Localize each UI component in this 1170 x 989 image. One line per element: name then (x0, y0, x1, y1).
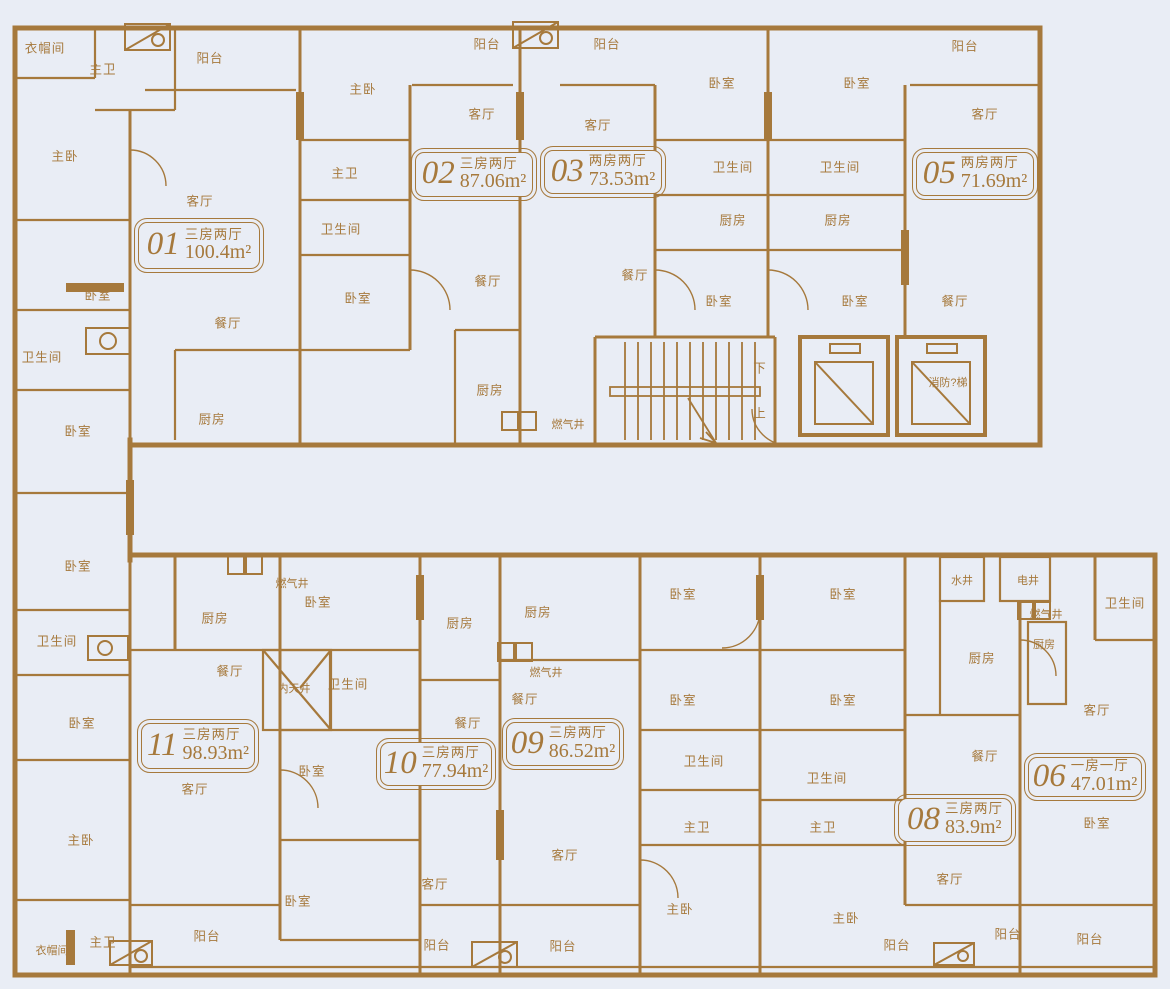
room-label: 阳台 (423, 935, 450, 954)
room-label: 客厅 (936, 869, 963, 888)
room-label: 主卫 (89, 932, 116, 951)
room-label: 餐厅 (621, 265, 648, 284)
room-label: 主卫 (683, 817, 710, 836)
unit-badge-01: 01三房两厅100.4m² (138, 222, 260, 269)
staircase (610, 342, 760, 443)
room-label: 主卫 (89, 59, 116, 78)
room-label: 电井 (1017, 572, 1039, 588)
unit-area: 71.69m² (961, 171, 1028, 192)
unit-number: 02 (422, 157, 455, 192)
room-label: 主卧 (51, 146, 78, 165)
floor-plan-canvas: 衣帽间主卫阳台主卧客厅卧室餐厅卫生间厨房卧室主卧主卫卫生间卧室阳台客厅餐厅厨房燃… (0, 0, 1170, 989)
room-label: 消防?梯 (928, 374, 967, 390)
unit-number: 06 (1033, 760, 1066, 795)
room-label: 燃气井 (552, 416, 585, 432)
unit-number: 08 (907, 803, 940, 838)
room-label: 卧室 (64, 421, 91, 440)
room-label: 厨房 (198, 409, 225, 428)
room-label: 上 (753, 403, 767, 422)
unit-badge-03: 03两房两厅73.53m² (544, 150, 662, 194)
unit-layout-type: 三房两厅 (460, 157, 518, 171)
room-label: 客厅 (584, 115, 611, 134)
unit-layout-type: 两房两厅 (961, 156, 1019, 170)
unit-badge-11: 11三房两厅98.93m² (141, 723, 255, 769)
unit-area: 87.06m² (460, 171, 527, 192)
unit-number: 01 (147, 228, 180, 263)
room-label: 卫生间 (684, 751, 725, 770)
door-arcs (130, 150, 1056, 898)
room-label: 客厅 (186, 191, 213, 210)
room-label: 餐厅 (216, 661, 243, 680)
room-label: 厨房 (476, 380, 503, 399)
room-label: 餐厅 (474, 271, 501, 290)
room-label: 卫生间 (713, 157, 754, 176)
unit-layout-type: 一房一厅 (1071, 759, 1129, 773)
unit-badge-09: 09三房两厅86.52m² (506, 722, 620, 766)
room-label: 主卧 (67, 830, 94, 849)
room-label: 客厅 (551, 845, 578, 864)
room-label: 主卧 (349, 79, 376, 98)
room-label: 主卧 (666, 899, 693, 918)
unit-layout-type: 三房两厅 (183, 728, 241, 742)
room-label: 卧室 (669, 584, 696, 603)
room-label: 主卫 (331, 163, 358, 182)
room-label: 卫生间 (1105, 593, 1146, 612)
unit-area: 47.01m² (1071, 774, 1138, 795)
room-label: 卧室 (68, 713, 95, 732)
unit-badge-02: 02三房两厅87.06m² (415, 152, 533, 197)
unit-area: 73.53m² (589, 169, 656, 190)
unit-badge-10: 10三房两厅77.94m² (380, 742, 492, 786)
unit-number: 05 (923, 157, 956, 192)
unit-number: 03 (551, 155, 584, 190)
room-label: 燃气井 (530, 664, 563, 680)
unit-number: 11 (147, 729, 178, 764)
room-label: 水井 (951, 572, 973, 588)
unit-number: 10 (384, 747, 417, 782)
room-label: 餐厅 (971, 746, 998, 765)
room-label: 卧室 (344, 288, 371, 307)
unit-layout-type: 三房两厅 (945, 802, 1003, 816)
room-label: 卫生间 (807, 768, 848, 787)
room-label: 阳台 (196, 48, 223, 67)
unit-layout-type: 三房两厅 (422, 746, 480, 760)
room-label: 厨房 (968, 648, 995, 667)
room-label: 厨房 (719, 210, 746, 229)
room-label: 主卧 (832, 908, 859, 927)
room-label: 卧室 (298, 761, 325, 780)
room-label: 主卫 (809, 817, 836, 836)
unit-area: 86.52m² (549, 741, 616, 762)
room-label: 卫生间 (37, 631, 78, 650)
room-label: 燃气井 (276, 575, 309, 591)
room-label: 厨房 (524, 602, 551, 621)
room-label: 客厅 (421, 874, 448, 893)
room-label: 卧室 (669, 690, 696, 709)
room-label: 阳台 (883, 935, 910, 954)
room-label: 客厅 (1083, 700, 1110, 719)
room-label: 卫生间 (328, 674, 369, 693)
unit-layout-type: 两房两厅 (589, 154, 647, 168)
room-label: 下 (753, 358, 767, 377)
room-label: 阳台 (994, 924, 1021, 943)
unit-area: 98.93m² (183, 743, 250, 764)
room-label: 厨房 (1033, 636, 1055, 652)
room-label: 卧室 (843, 73, 870, 92)
room-label: 卫生间 (22, 347, 63, 366)
room-label: 卧室 (829, 584, 856, 603)
room-label: 餐厅 (454, 713, 481, 732)
unit-layout-type: 三房两厅 (549, 726, 607, 740)
room-label: 卧室 (64, 556, 91, 575)
room-label: 卧室 (304, 592, 331, 611)
room-label: 阳台 (549, 936, 576, 955)
room-label: 衣帽间 (25, 38, 66, 57)
unit-area: 100.4m² (185, 242, 252, 263)
room-label: 厨房 (201, 608, 228, 627)
room-label: 阳台 (193, 926, 220, 945)
unit-badge-06: 06一房一厅47.01m² (1028, 757, 1142, 797)
unit-area: 77.94m² (422, 761, 489, 782)
room-label: 客厅 (181, 779, 208, 798)
room-label: 卧室 (708, 73, 735, 92)
unit-layout-type: 三房两厅 (185, 228, 243, 242)
room-label: 厨房 (824, 210, 851, 229)
room-label: 卧室 (829, 690, 856, 709)
room-label: 卧室 (284, 891, 311, 910)
room-label: 卧室 (705, 291, 732, 310)
room-label: 阳台 (1076, 929, 1103, 948)
room-label: 厨房 (446, 613, 473, 632)
room-label: 餐厅 (511, 689, 538, 708)
unit-number: 09 (511, 727, 544, 762)
room-label: 客厅 (468, 104, 495, 123)
room-label: 卫生间 (321, 219, 362, 238)
room-label: 内天井 (278, 680, 311, 696)
room-label: 餐厅 (214, 313, 241, 332)
unit-badge-05: 05两房两厅71.69m² (916, 152, 1034, 196)
room-label: 阳台 (951, 36, 978, 55)
room-label: 卧室 (84, 285, 111, 304)
unit-badge-08: 08三房两厅83.9m² (898, 798, 1012, 842)
room-label: 阳台 (473, 34, 500, 53)
room-label: 衣帽间 (36, 942, 69, 958)
room-label: 餐厅 (941, 291, 968, 310)
room-label: 卧室 (1083, 813, 1110, 832)
room-label: 卧室 (841, 291, 868, 310)
room-label: 阳台 (593, 34, 620, 53)
room-label: 燃气井 (1030, 606, 1063, 622)
room-label: 卫生间 (820, 157, 861, 176)
room-label: 客厅 (971, 104, 998, 123)
unit-area: 83.9m² (945, 817, 1002, 838)
